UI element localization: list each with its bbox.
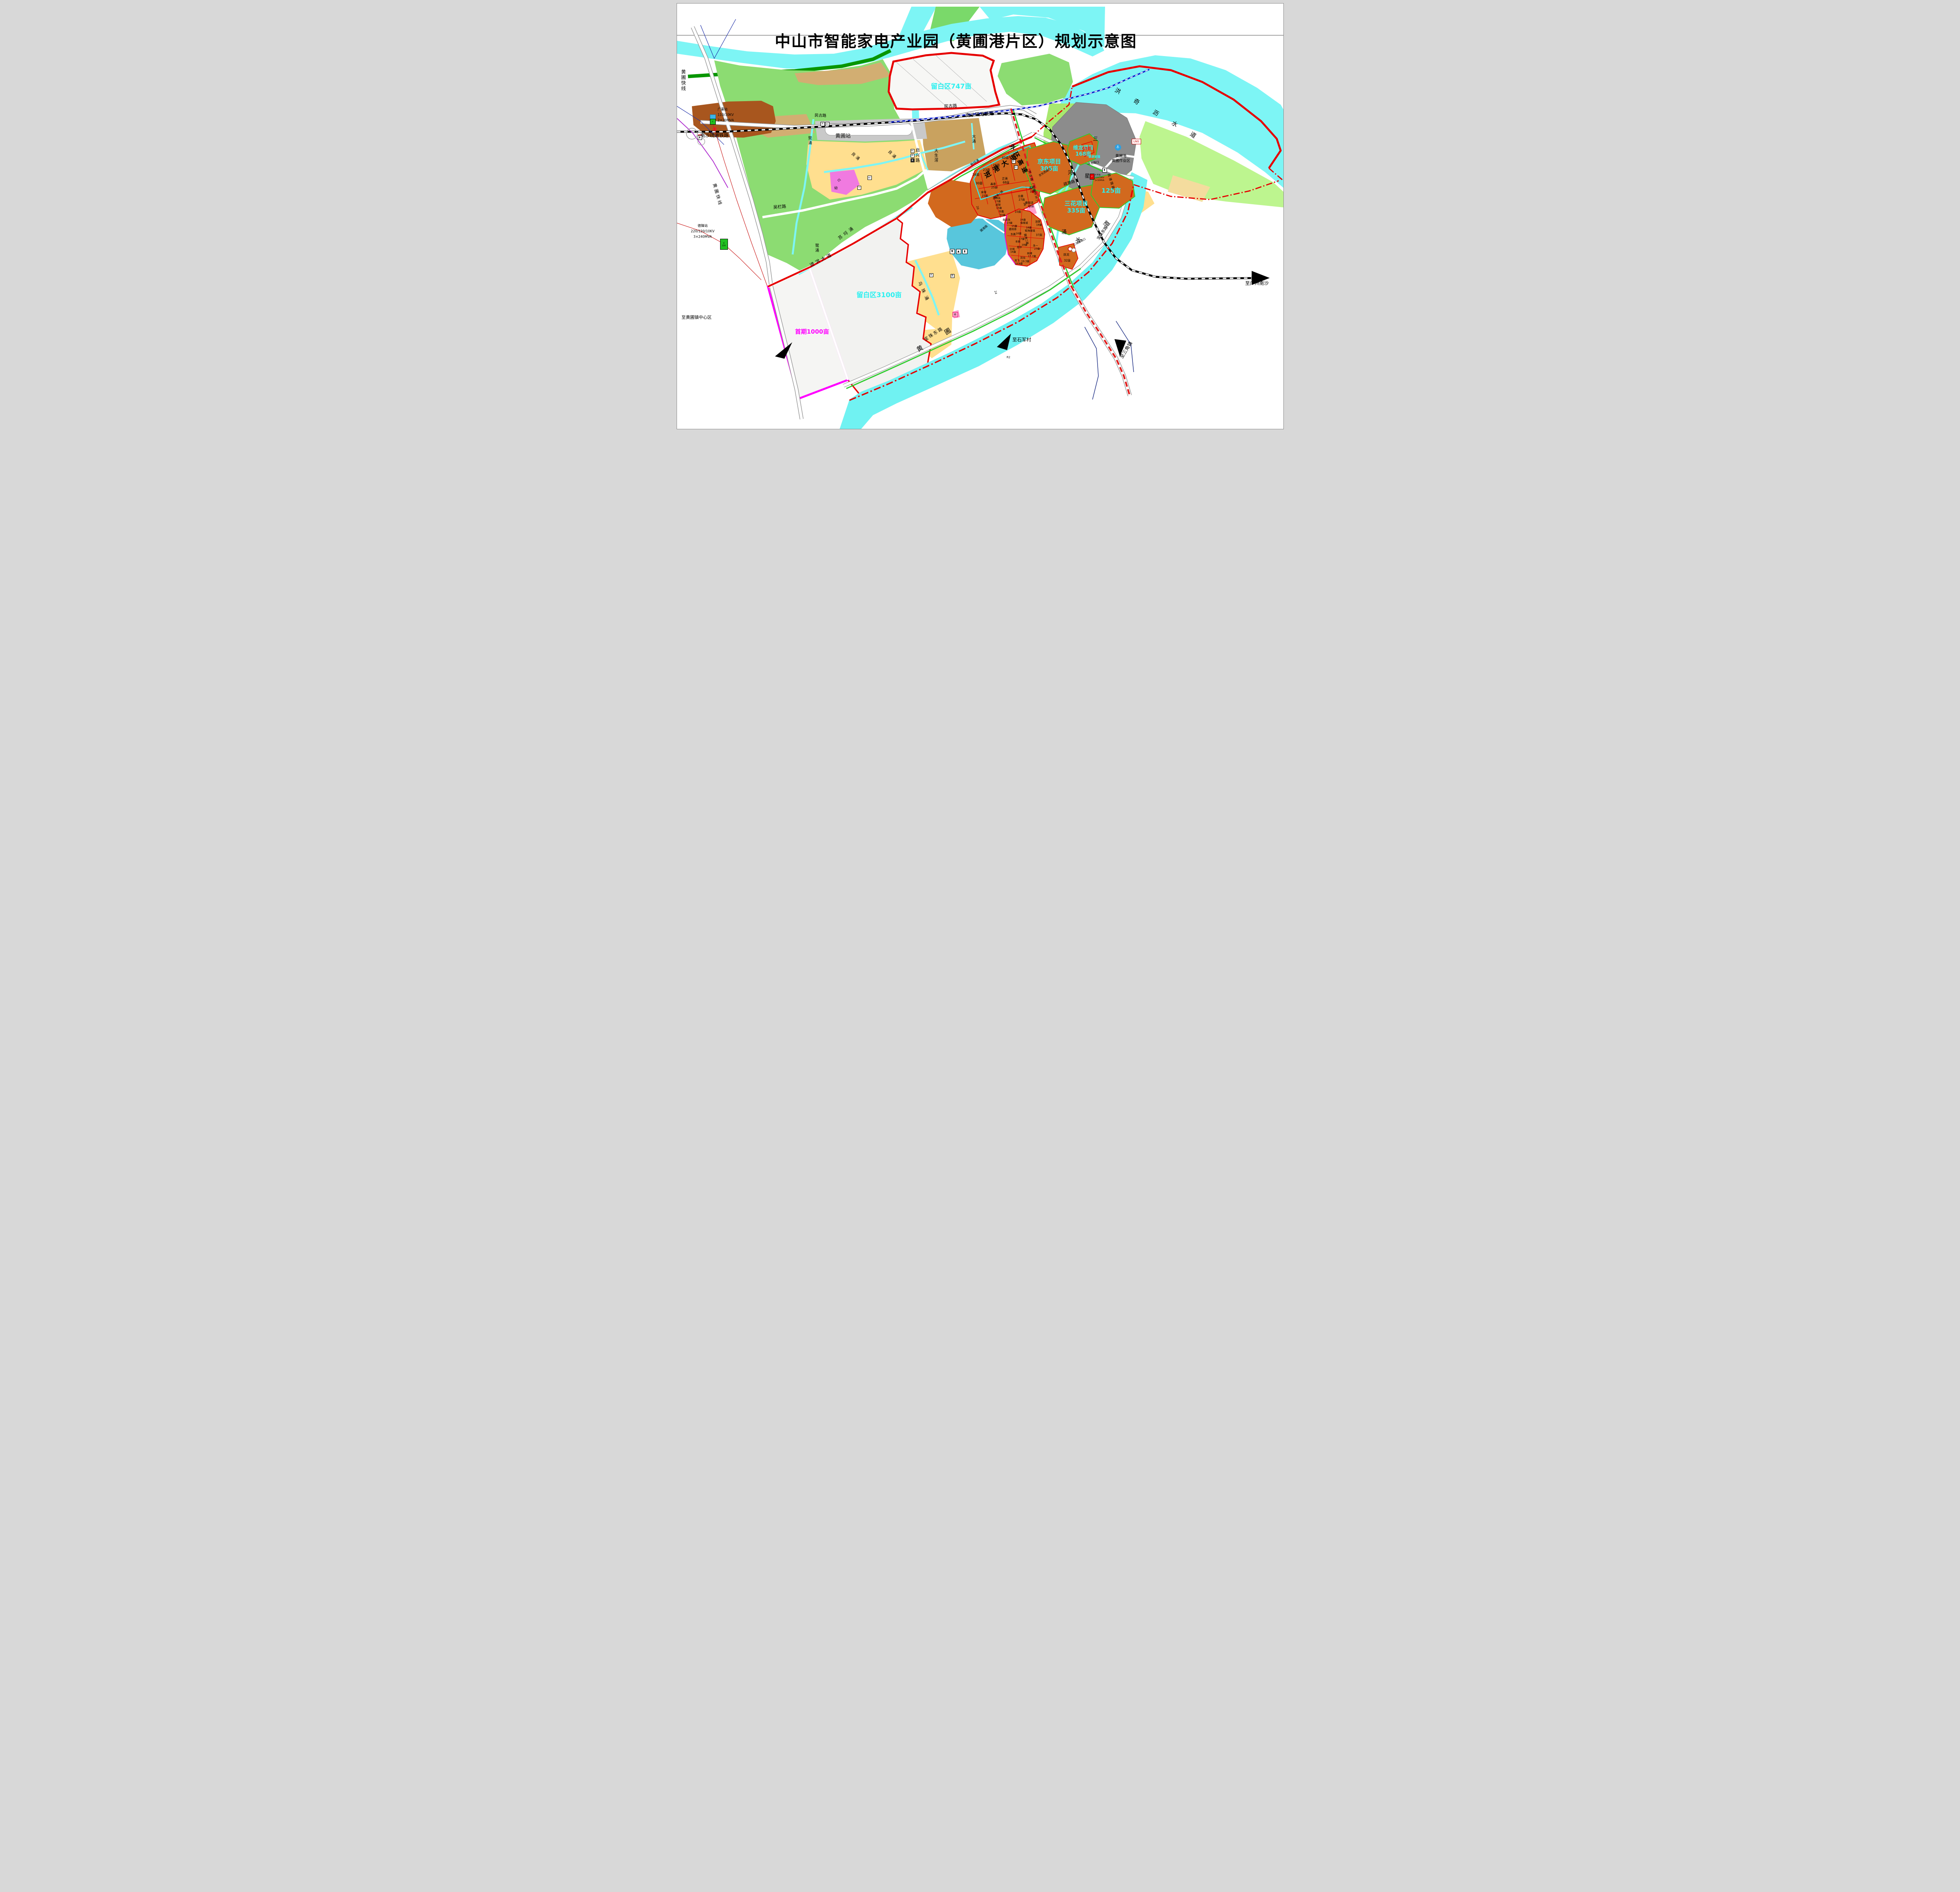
arrow-to-nansha	[1252, 271, 1270, 285]
anchor-badge	[1115, 144, 1121, 151]
farmland-ne	[998, 54, 1073, 105]
planning-map: 中山市智能家电产业园（黄圃港片区）规划示意图 留白区747亩 留白区3100亩 …	[677, 3, 1284, 429]
arrow-to-sanjiao	[1114, 339, 1126, 356]
sport-marker-2	[1072, 248, 1076, 252]
reserve-747	[889, 53, 999, 109]
red-dot-marker	[1031, 191, 1034, 193]
map-canvas	[677, 4, 1283, 429]
